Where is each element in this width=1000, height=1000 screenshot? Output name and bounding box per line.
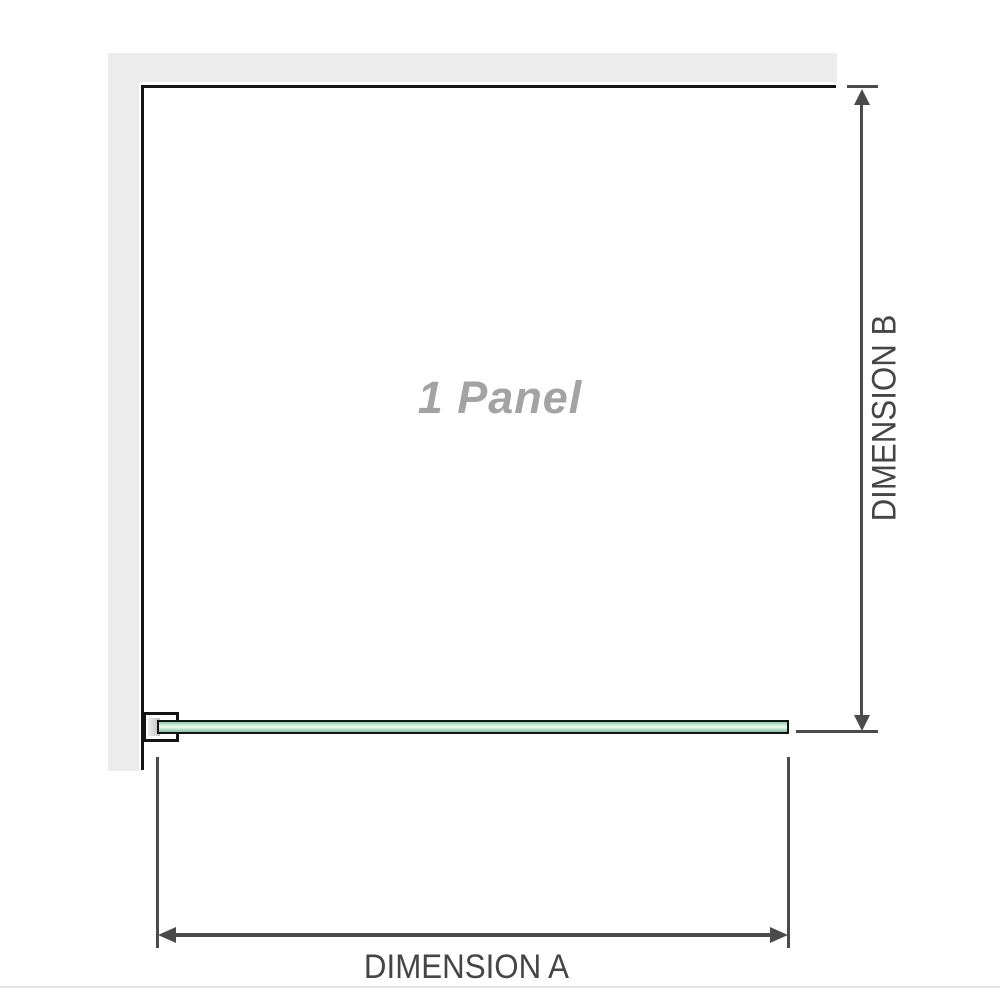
dimension-b-line (860, 100, 863, 718)
panel-count-label: 1 Panel (350, 372, 650, 424)
panel-dimension-diagram: 1 Panel DIMENSION B DIMENSION A (0, 0, 1000, 1000)
arrow-right-icon (770, 927, 788, 943)
arrow-down-icon (854, 715, 870, 731)
dimension-a-line (170, 933, 772, 937)
dimension-a-label-container: DIMENSION A (266, 948, 666, 987)
dimension-a-label: DIMENSION A (363, 948, 568, 987)
opening-top-edge (142, 85, 836, 88)
page-baseline (0, 986, 1000, 988)
dimension-b-tick-top (847, 85, 878, 88)
wall-left (108, 53, 139, 771)
glass-panel (157, 720, 789, 734)
wall-top (108, 53, 837, 82)
dimension-a-extension-right (787, 757, 790, 948)
dimension-b-label: DIMENSION B (866, 315, 905, 522)
arrow-up-icon (854, 89, 870, 105)
opening-left-edge (141, 85, 144, 770)
arrow-left-icon (158, 927, 176, 943)
dimension-a-extension-left (156, 757, 159, 948)
